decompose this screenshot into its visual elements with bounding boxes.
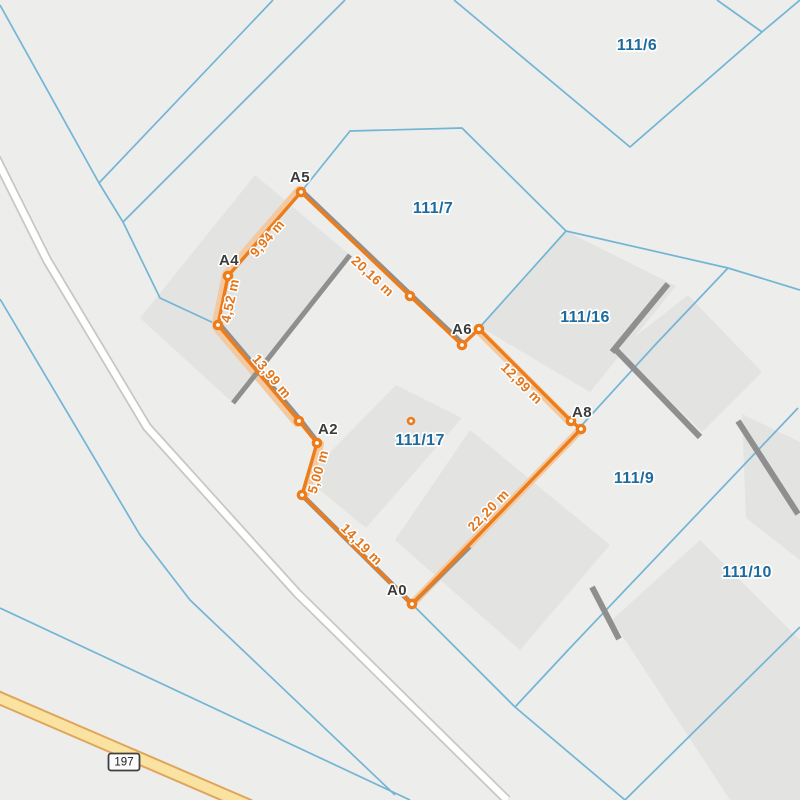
vertex-handle-center: [226, 274, 230, 278]
vertex-handle-center: [300, 493, 304, 497]
area-marker: [407, 417, 416, 426]
map-canvas[interactable]: 111/6111/7111/16111/17111/9111/10A0A2A4A…: [0, 0, 800, 800]
vertex-label-a8: A8: [572, 404, 592, 421]
vertex-label-a2: A2: [318, 421, 338, 438]
vertex-label-a0: A0: [387, 582, 407, 599]
road-shield: 197: [109, 754, 140, 771]
vertex-handle-center: [297, 419, 301, 423]
measure-vertex-a6[interactable]: [474, 324, 485, 335]
parcel-label-111-7: 111/7: [413, 200, 453, 217]
parcel-label-111-16: 111/16: [560, 309, 610, 326]
measure-vertex-a0[interactable]: [407, 599, 418, 610]
vertex-handle-center: [216, 323, 220, 327]
vertex-handle-center: [299, 190, 303, 194]
vertex-handle-center: [408, 294, 412, 298]
measure-vertex-a8[interactable]: [576, 424, 587, 435]
vertex-handle-center: [579, 427, 583, 431]
parcel-label-111-17: 111/17: [395, 432, 445, 449]
area-marker-dot-center: [409, 419, 412, 422]
vertex-handle-center: [315, 441, 319, 445]
vertex-label-a5: A5: [290, 169, 310, 186]
parcel-label-111-6: 111/6: [617, 37, 657, 54]
parcel-label-111-9: 111/9: [614, 470, 654, 487]
measure-vertex[interactable]: [294, 416, 305, 427]
parcel-label-111-10: 111/10: [722, 564, 772, 581]
vertex-label-a4: A4: [219, 252, 239, 269]
road-shield-number: 197: [114, 757, 133, 769]
vertex-handle-center: [477, 327, 481, 331]
measure-vertex[interactable]: [457, 340, 468, 351]
map-viewport[interactable]: 111/6111/7111/16111/17111/9111/10A0A2A4A…: [0, 0, 800, 800]
vertex-label-a6: A6: [452, 321, 472, 338]
measure-vertex[interactable]: [405, 291, 416, 302]
vertex-handle-center: [410, 602, 414, 606]
vertex-handle-center: [460, 343, 464, 347]
measure-vertex-a5[interactable]: [296, 187, 307, 198]
measure-vertex-a2[interactable]: [312, 438, 323, 449]
